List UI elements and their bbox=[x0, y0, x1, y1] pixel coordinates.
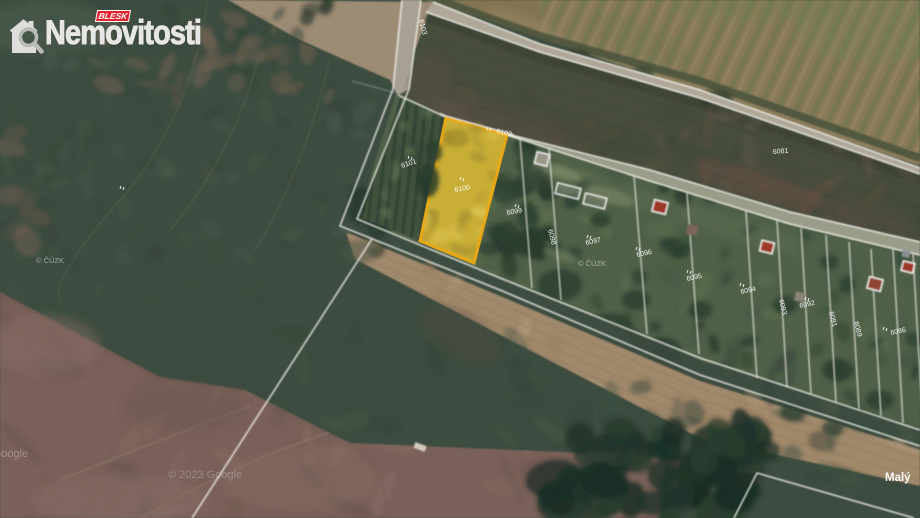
svg-text:Malý: Malý bbox=[885, 472, 911, 484]
svg-text:© 2023 Google: © 2023 Google bbox=[0, 448, 28, 460]
svg-text:© ČÚZK: © ČÚZK bbox=[36, 256, 64, 265]
svg-text:© ČÚZK: © ČÚZK bbox=[578, 259, 606, 268]
svg-text:© 2023 Google: © 2023 Google bbox=[168, 469, 242, 481]
svg-text:6081: 6081 bbox=[773, 148, 789, 156]
